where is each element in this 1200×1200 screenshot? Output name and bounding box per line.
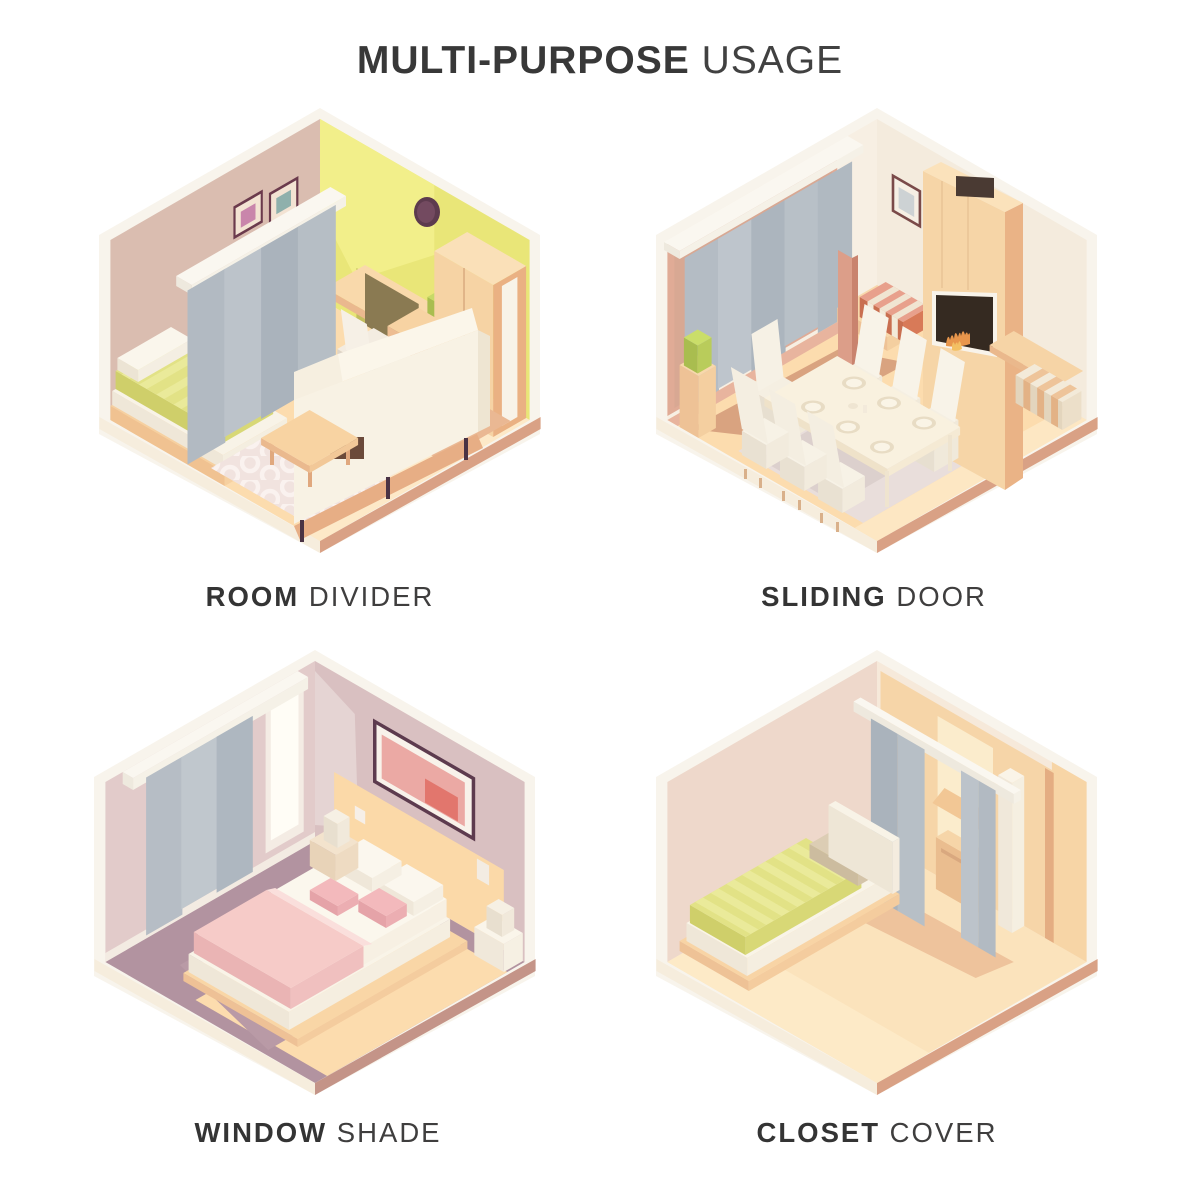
svg-text:WINDOW SHADE: WINDOW SHADE	[194, 1117, 441, 1148]
svg-text:SLIDING DOOR: SLIDING DOOR	[761, 581, 987, 612]
svg-text:ROOM DIVIDER: ROOM DIVIDER	[206, 581, 435, 612]
svg-text:MULTI-PURPOSE USAGE: MULTI-PURPOSE USAGE	[357, 39, 843, 82]
svg-text:CLOSET COVER: CLOSET COVER	[757, 1117, 998, 1148]
